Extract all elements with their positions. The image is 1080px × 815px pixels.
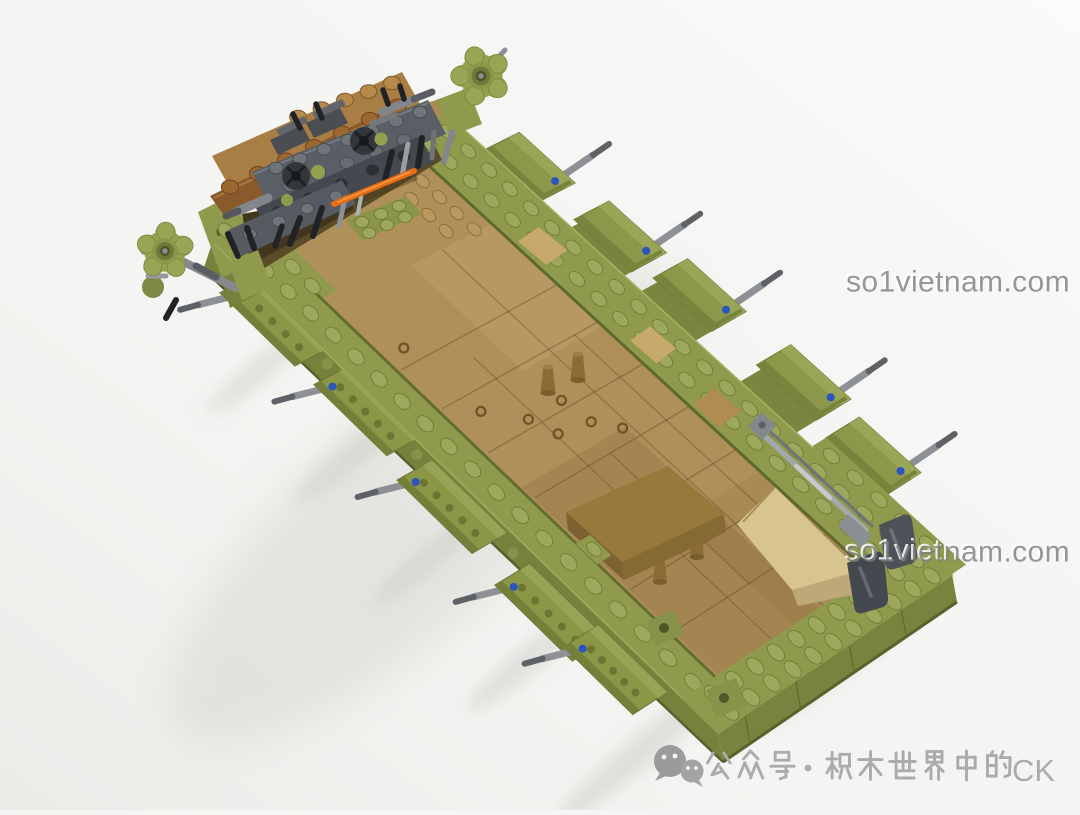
- svg-text:so1vietnam.com: so1vietnam.com: [846, 266, 1070, 299]
- svg-text:CK: CK: [1012, 753, 1055, 788]
- svg-text:so1vietnam.com: so1vietnam.com: [846, 536, 1070, 569]
